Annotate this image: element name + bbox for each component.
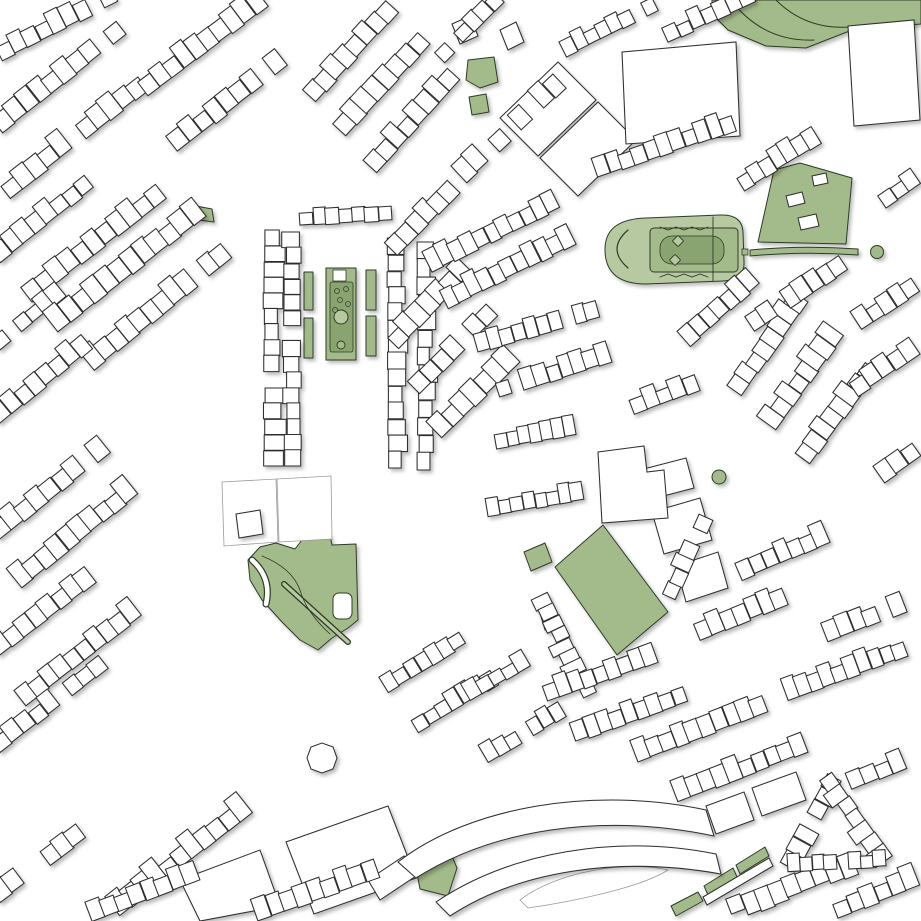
octagon-building: [307, 743, 337, 773]
terrace-house: [419, 436, 433, 453]
terrace-house: [284, 264, 299, 279]
crescent-end-block: [706, 792, 754, 834]
terrace-row: [461, 649, 531, 700]
terrace-house: [283, 388, 299, 404]
terrace-house: [800, 857, 813, 872]
terrace-house: [94, 0, 118, 8]
terrace-house: [287, 419, 300, 435]
crescent-end-block: [752, 772, 806, 816]
terrace-house: [284, 435, 301, 451]
terrace-house: [0, 330, 11, 350]
terrace-house: [417, 452, 430, 470]
terrace-row: [78, 244, 232, 371]
terrace-house: [872, 850, 886, 867]
terrace-house: [287, 403, 300, 419]
terrace-house: [265, 419, 286, 434]
terrace-house: [823, 855, 837, 870]
terrace-house: [641, 0, 659, 16]
terrace-row: [485, 481, 584, 516]
terrace-house: [284, 357, 299, 373]
terrace-house: [299, 212, 313, 225]
median-end-square: [742, 249, 748, 255]
terrace-house: [264, 355, 279, 371]
terrace-house: [264, 340, 280, 356]
small-green: [466, 57, 498, 88]
terrace-house: [787, 853, 800, 872]
terrace-row: [845, 748, 907, 789]
terrace-house: [388, 255, 404, 271]
terrace-house: [568, 481, 584, 501]
figure-ground-map: [0, 0, 921, 921]
terrace-house: [265, 388, 284, 403]
terrace-house: [848, 851, 862, 869]
terrace-house: [546, 491, 560, 506]
terrace-row: [629, 375, 700, 415]
terrace-house: [265, 324, 278, 341]
small-building: [236, 510, 263, 538]
terrace-row: [0, 335, 93, 424]
terrace-house: [378, 206, 392, 220]
terrace-house: [264, 308, 277, 324]
terrace-house: [339, 209, 353, 223]
tree: [338, 298, 343, 303]
tree: [344, 287, 349, 292]
small-green: [524, 543, 552, 571]
terrace-row: [6, 475, 138, 588]
terrace-row: [478, 702, 566, 763]
terrace-house: [285, 450, 301, 466]
white-plot: [277, 476, 332, 542]
terrace-house: [387, 272, 401, 288]
green-median: [750, 247, 858, 256]
terrace-house: [284, 280, 300, 295]
terrace-row: [745, 256, 848, 332]
terrace-house: [419, 401, 432, 418]
terrace-house: [264, 262, 285, 277]
square-south-circle: [337, 341, 345, 349]
green-hedge-strip: [671, 892, 703, 916]
terrace-house: [388, 402, 403, 419]
terrace-house: [264, 451, 284, 466]
terrace-house: [284, 311, 301, 326]
small-building: [500, 22, 524, 50]
terrace-house: [418, 331, 432, 348]
terrace-house: [325, 207, 340, 224]
terrace-house: [435, 43, 455, 63]
terrace-house: [263, 293, 283, 309]
terrace-house: [488, 129, 511, 152]
terrace-house: [885, 591, 907, 617]
green-field: [555, 525, 668, 655]
terrace-house: [103, 21, 126, 44]
terrace-house: [860, 855, 873, 868]
map-viewport[interactable]: [0, 0, 921, 921]
terrace-house: [388, 369, 405, 386]
terrace-house: [388, 420, 405, 435]
terrace-row: [735, 520, 830, 580]
terrace-row: [694, 588, 789, 640]
terrace-house: [389, 287, 405, 304]
terrace-row: [379, 632, 466, 692]
terrace-row: [780, 642, 908, 701]
terrace-house: [284, 295, 300, 310]
garden-strip: [304, 318, 313, 358]
terrace-house: [389, 451, 402, 468]
terrace-house: [282, 232, 300, 248]
tree: [346, 302, 351, 307]
small-green: [469, 94, 489, 115]
terrace-row: [849, 337, 920, 396]
terrace-row: [494, 414, 576, 449]
terrace-row: [473, 301, 600, 352]
green-roundabout: [871, 246, 884, 259]
terrace-house: [388, 386, 402, 402]
garden-strip: [366, 316, 376, 356]
terrace-house: [265, 230, 279, 246]
terrace-row: [435, 0, 504, 63]
tree: [335, 289, 340, 294]
park-court: [333, 593, 352, 619]
garden-strip: [304, 272, 313, 310]
terrace-row: [821, 591, 908, 641]
terrace-house: [389, 435, 408, 452]
terrace-house: [287, 247, 302, 263]
terrace-house: [262, 49, 287, 75]
terrace-row: [559, 0, 658, 57]
terrace-house: [84, 435, 110, 462]
terrace-house: [509, 496, 524, 512]
terrace-house: [264, 277, 283, 293]
terrace-row: [0, 824, 86, 902]
terrace-row: [873, 443, 921, 483]
terrace-house: [282, 340, 300, 356]
terrace-house: [264, 435, 285, 450]
terrace-row: [387, 238, 408, 468]
green-roundabout: [712, 470, 726, 484]
terrace-row: [878, 168, 921, 208]
tree: [333, 308, 338, 313]
garden-strip: [366, 270, 376, 310]
terrace-house: [287, 372, 302, 388]
terrace-house: [364, 207, 379, 223]
terrace-house: [485, 497, 500, 517]
buildings-layer: [0, 0, 921, 921]
terrace-house: [265, 246, 285, 261]
terrace-row: [299, 206, 392, 225]
square-annex: [333, 270, 346, 281]
l-shaped-building: [598, 446, 668, 523]
terrace-house: [388, 352, 406, 369]
terrace-house: [263, 403, 280, 419]
terrace-house: [522, 491, 536, 509]
terrace-row: [850, 278, 920, 329]
large-building: [848, 20, 920, 126]
